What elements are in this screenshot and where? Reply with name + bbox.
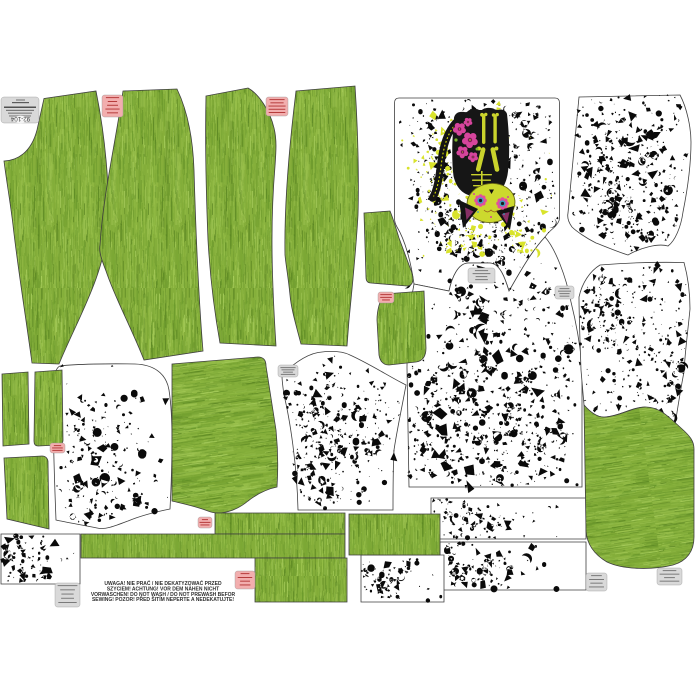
svg-text:SEWING! POZOR! PŘED ŠITÍM NEPE: SEWING! POZOR! PŘED ŠITÍM NEPERTE A NEDE… <box>92 595 234 603</box>
svg-text:92-104: 92-104 <box>10 115 30 122</box>
